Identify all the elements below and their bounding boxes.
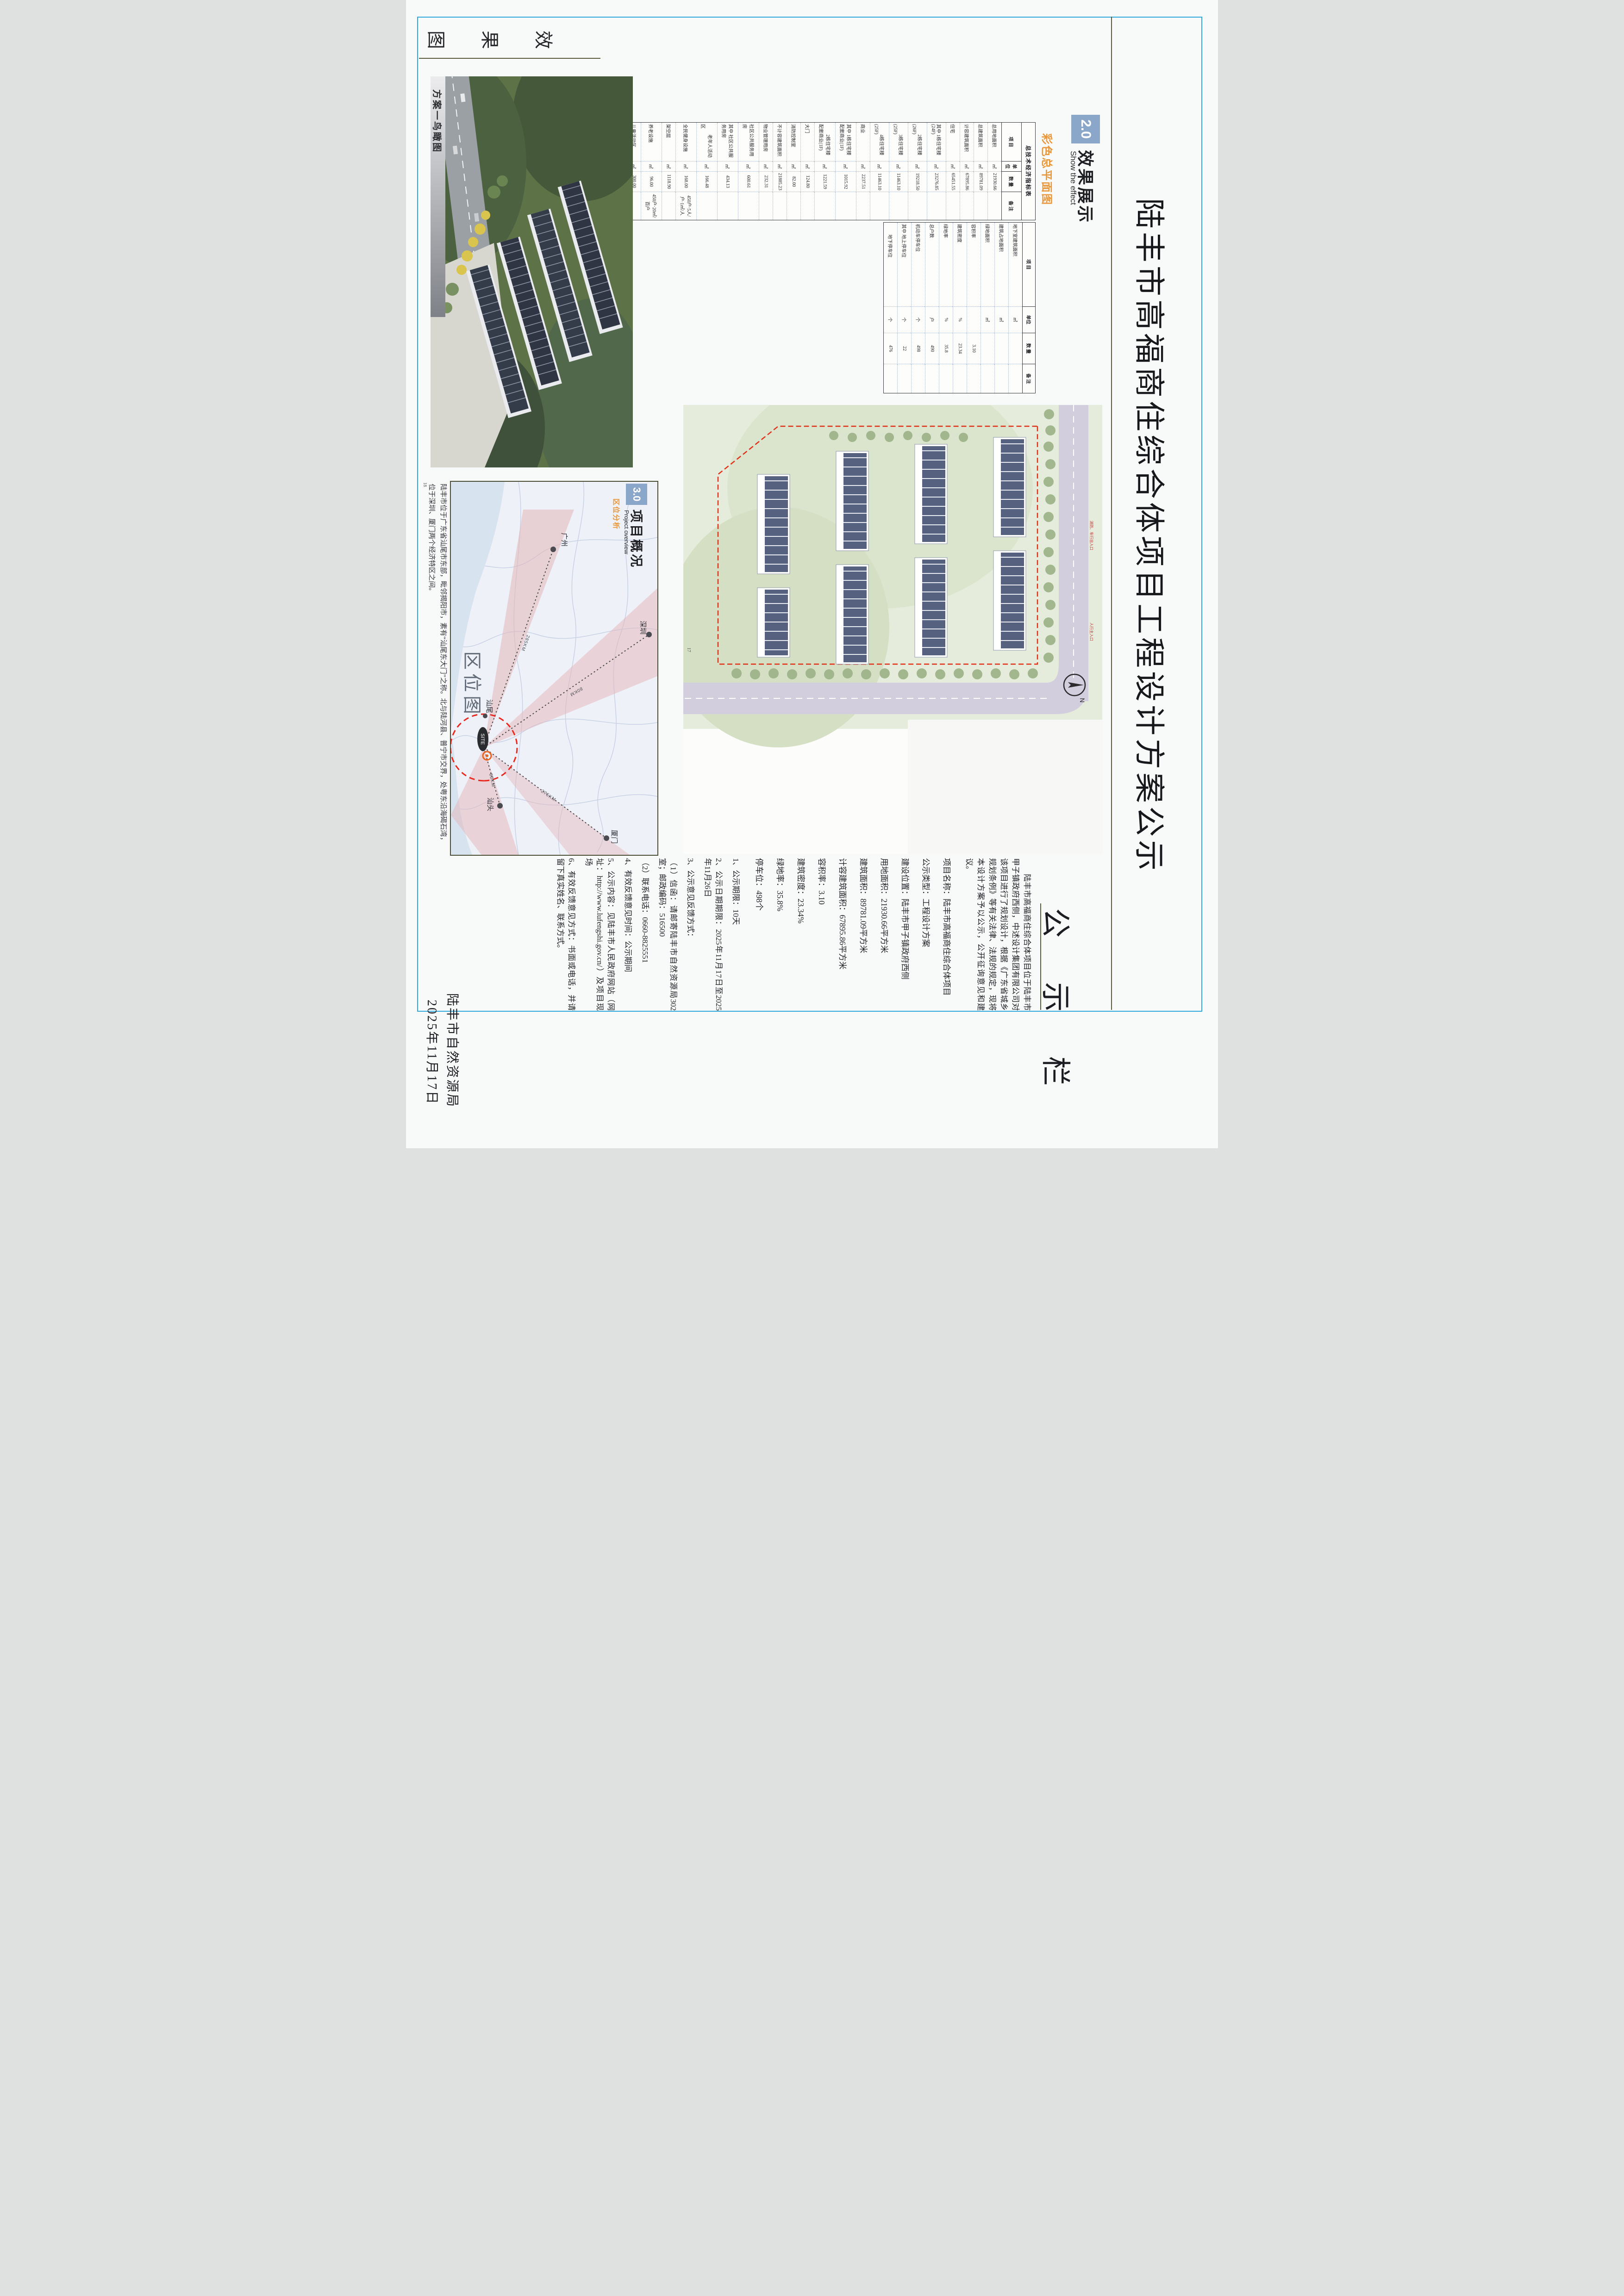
- table-cell-unit: ㎡: [988, 162, 1002, 171]
- table-cell-qty: 21930.66: [988, 171, 1002, 192]
- notice-info-list: 项目名称：陆丰市高福商住综合体项目公示类型：工程设计方案建设位置：陆丰市甲子镇政…: [749, 858, 957, 1011]
- table-row: 地下停车位 个 476: [884, 223, 898, 393]
- site-plan-panel: N 消防、车行出入口 人行主入口 17: [683, 405, 1102, 854]
- table-row: 2栋住宅楼配套商业(1F) ㎡ 1221.59: [815, 123, 836, 220]
- table-cell-qty: 11463.10: [889, 171, 908, 192]
- table-row: 其中 社区公共服务用房 ㎡ 434.13: [718, 123, 738, 220]
- table-row: 总用地面积 ㎡ 21930.66: [988, 123, 1002, 220]
- table-cell-unit: ㎡: [946, 162, 960, 171]
- svg-text:人行主入口: 人行主入口: [1089, 622, 1094, 641]
- table-cell-unit: ㎡: [815, 162, 836, 171]
- table-cell-unit: %: [953, 306, 967, 333]
- table-cell-qty: 19218.50: [908, 171, 927, 192]
- table-b-header: 备 注: [1023, 364, 1036, 393]
- table-cell-item: 总用地面积: [988, 123, 1002, 162]
- table-cell-qty: [981, 333, 995, 364]
- table-row: 计容建筑面积 ㎡ 67895.86: [960, 123, 974, 220]
- table-cell-unit: 个: [884, 306, 898, 333]
- table-cell-note: [995, 364, 1009, 393]
- notice-info-line: 停车位：498个: [749, 858, 769, 1011]
- section3-label: 区位分析: [612, 498, 621, 530]
- section2-number-box: 2.0: [1071, 115, 1100, 143]
- table-cell-unit: ㎡: [960, 162, 974, 171]
- table-cell-note: [974, 192, 988, 220]
- location-map-panel: SITE 广州 深圳 汕尾 汕头 厦门 285KM 80KM 80KM 275K…: [450, 481, 658, 856]
- notice-date: 2025年11月17日: [424, 1000, 442, 1105]
- table-cell-note: [939, 364, 953, 393]
- table-b-header: 单位: [1023, 306, 1036, 333]
- table-row: 全民健身设施 ㎡ 168.00 450户·5人/户·1㎡/人: [676, 123, 697, 220]
- table-cell-unit: ㎡: [974, 162, 988, 171]
- tab-char: 果: [478, 31, 505, 52]
- section3-number-box: 3.0: [626, 484, 647, 505]
- table-cell-item: 养老设施: [641, 123, 662, 162]
- svg-text:消防、车行出入口: 消防、车行出入口: [1089, 521, 1094, 550]
- table-cell-qty: 1015.92: [836, 171, 856, 192]
- map-city-guangzhou: 广州: [560, 533, 569, 547]
- table-a-header: 备 注: [1002, 192, 1022, 220]
- table-cell-qty: 232.31: [759, 171, 773, 192]
- table-cell-note: [889, 192, 908, 220]
- table-cell-note: [912, 364, 925, 393]
- notice-info-line: 建筑密度：23.34%: [790, 858, 811, 1011]
- table-cell-note: [815, 192, 836, 220]
- table-cell-item: 社区公共服务用房: [738, 123, 759, 162]
- table-cell-qty: 35.8: [939, 333, 953, 364]
- table-cell-note: [953, 364, 967, 393]
- tab-char: 效: [531, 31, 558, 52]
- map-description: 陆丰市位于广东省汕尾市东部，毗邻揭阳市，素有“汕尾东大门”之称。北与陆河县、普宁…: [425, 484, 449, 844]
- section3-title: 项目概况: [628, 510, 646, 569]
- table-cell-unit: ㎡: [856, 162, 870, 171]
- left-tab-divider: [419, 58, 600, 59]
- table-row: 2栋住宅楼(26F) ㎡ 19218.50: [908, 123, 927, 220]
- table-cell-unit: ㎡: [927, 162, 946, 171]
- table-row: 建筑密度 % 23.34: [953, 223, 967, 393]
- table-cell-item: 地下停车位: [884, 223, 898, 307]
- table-cell-item: 4栋住宅楼(25F): [870, 123, 889, 162]
- table-row: 社区公共服务用房 ㎡ 600.61: [738, 123, 759, 220]
- page-title: 陆丰市高福商住综合体项目工程设计方案公示: [1130, 198, 1174, 874]
- table-cell-qty: 23.34: [953, 333, 967, 364]
- map-description-line: 位于深圳、厦门两个经济特区之间。: [425, 484, 437, 844]
- table-cell-qty: 1221.59: [815, 171, 836, 192]
- table-row: 总户数 户 490: [925, 223, 939, 393]
- notice-item-line: 5、公示内容：见陆丰市人民政府网站（网址：http://www.lufengsh…: [583, 858, 616, 1011]
- table-cell-item: 其中 地上停车位: [898, 223, 912, 307]
- map-city-shenzhen: 深圳: [638, 621, 648, 635]
- notice-item-line: 6、有效反馈意见方式：书面或电话，并请留下真实姓名、联系方式。: [555, 858, 577, 1011]
- table-cell-note: [801, 192, 815, 220]
- color-siteplan-label: 彩色总平面图: [1040, 133, 1056, 205]
- table-cell-qty: 89781.09: [974, 171, 988, 192]
- table-a-header: 单位: [1002, 162, 1022, 171]
- table-cell-item: 其中 社区公共服务用房: [718, 123, 738, 162]
- board-header-underline: [1040, 903, 1041, 1010]
- table-cell-unit: ㎡: [676, 162, 697, 171]
- notice-info-line: 计容建筑面积：67895.86平方米: [832, 858, 853, 1011]
- notice-board: 陆丰市高福商住综合体项目工程设计方案公示 公 示 栏 陆丰市高福商住综合体项目位…: [406, 0, 1218, 1148]
- table-cell-unit: 个: [912, 306, 925, 333]
- table-cell-note: [960, 192, 974, 220]
- table-cell-qty: 168.00: [676, 171, 697, 192]
- table-cell-item: 其中 1栋住宅楼配套商业(1F): [836, 123, 856, 162]
- table-cell-item: 老年人活动区: [697, 123, 718, 162]
- notice-info-line: 项目名称：陆丰市高福商住综合体项目: [936, 858, 957, 1011]
- table-cell-item: 总户数: [925, 223, 939, 307]
- notice-item-line: （2）联系电话：0660-8825551: [639, 858, 650, 1011]
- signature: 陆丰市自然资源局: [444, 993, 462, 1108]
- section2-subtitle: Show the effect: [1068, 151, 1078, 205]
- table-cell-item: 架空层: [662, 123, 676, 162]
- table-cell-item: 大门: [801, 123, 815, 162]
- table-cell-item: 物业管理用房: [759, 123, 773, 162]
- notice-info-line: 容积率：3.10: [811, 858, 832, 1011]
- notice-item-line: 3、公示意见反馈方式：: [685, 858, 696, 1011]
- notice-item-list: 1、公示期限：10天2、公示日期期限：2025年11月17日至2025年11月2…: [555, 858, 741, 1011]
- table-row: 其中 1栋住宅楼(24F) ㎡ 23276.85: [927, 123, 946, 220]
- table-row: 不计容建筑面积 ㎡ 21885.23: [773, 123, 787, 220]
- table-row: 地下室建筑面积 ㎡: [1009, 223, 1023, 393]
- notice-item-line: 1、公示期限：10天: [730, 858, 741, 1011]
- table-cell-note: [836, 192, 856, 220]
- table-cell-unit: ㎡: [995, 306, 1009, 333]
- notice-info-line: 建设位置：陆丰市甲子镇政府西侧: [894, 858, 915, 1011]
- table-cell-note: 450户·20㎡/百户: [641, 192, 662, 220]
- table-b-header: 数 量: [1023, 333, 1036, 364]
- table-cell-note: [925, 364, 939, 393]
- table-cell-unit: ㎡: [759, 162, 773, 171]
- table-cell-qty: 166.48: [697, 171, 718, 192]
- table-cell-unit: ㎡: [1009, 306, 1023, 333]
- table-cell-unit: ㎡: [641, 162, 662, 171]
- title-divider: [1111, 17, 1112, 1010]
- table-cell-item: 商业: [856, 123, 870, 162]
- site-plan-drawing: N 消防、车行出入口 人行主入口: [683, 405, 1102, 854]
- table-a-header: 数 量: [1002, 171, 1022, 192]
- table-cell-item: 机动车停车位: [912, 223, 925, 307]
- table-cell-qty: 21885.23: [773, 171, 787, 192]
- notice-item-line: 2、公示日期期限：2025年11月17日至2025年11月26日: [702, 858, 724, 1011]
- table-row: 建筑占地面积 ㎡: [995, 223, 1009, 393]
- table-row: 大门 ㎡ 124.80: [801, 123, 815, 220]
- map-description-line: 陆丰市位于广东省汕尾市东部，毗邻揭阳市，素有“汕尾东大门”之称。北与陆河县、普宁…: [437, 484, 449, 844]
- table-cell-unit: ㎡: [697, 162, 718, 171]
- table-cell-qty: 11463.10: [870, 171, 889, 192]
- table-cell-item: 其中 1栋住宅楼(24F): [927, 123, 946, 162]
- table-cell-qty: 124.80: [801, 171, 815, 192]
- table-cell-unit: ㎡: [787, 162, 801, 171]
- section2-title: 效果展示: [1074, 150, 1099, 224]
- notice-intro: 陆丰市高福商住综合体项目位于陆丰市甲子镇政府西侧，中述设计集团有限公司对该项目进…: [963, 858, 1033, 1011]
- table-row: 物业管理用房 ㎡ 232.31: [759, 123, 773, 220]
- table-cell-item: 地下室建筑面积: [1009, 223, 1023, 307]
- notice-item-line: （1）信函：请邮寄陆丰市自然资源局302室；邮政编码：516500: [656, 858, 679, 1011]
- tab-char: 图: [424, 31, 451, 52]
- table-cell-unit: ㎡: [870, 162, 889, 171]
- table-row: 其中 地上停车位 个 22: [898, 223, 912, 393]
- table-cell-qty: 65451.55: [946, 171, 960, 192]
- notice-item-line: 4、有效反馈意见时间：公示期间: [622, 858, 633, 1011]
- scanned-page: 陆丰市高福商住综合体项目工程设计方案公示 公 示 栏 陆丰市高福商住综合体项目位…: [406, 0, 1218, 1148]
- table-cell-qty: 3.10: [967, 333, 981, 364]
- table-cell-qty: 96.00: [641, 171, 662, 192]
- table-a-header: 项 目: [1002, 123, 1022, 162]
- table-cell-item: 总建筑面积: [974, 123, 988, 162]
- table-cell-note: [870, 192, 889, 220]
- table-row: 总建筑面积 ㎡ 89781.09: [974, 123, 988, 220]
- table-cell-qty: 82.00: [787, 171, 801, 192]
- table-cell-qty: 476: [884, 333, 898, 364]
- table-cell-note: [787, 192, 801, 220]
- left-tab-effect-drawing: 效 果 图: [424, 31, 558, 52]
- table-cell-unit: ㎡: [662, 162, 676, 171]
- section2-number: 2.0: [1078, 119, 1093, 139]
- table-cell-note: [908, 192, 927, 220]
- render-caption: 方案一鸟瞰图: [431, 76, 445, 153]
- table-cell-note: [856, 192, 870, 220]
- table-cell-note: [884, 364, 898, 393]
- table-cell-qty: 498: [912, 333, 925, 364]
- table-cell-note: [662, 192, 676, 220]
- table-row: 绿地面积 ㎡: [981, 223, 995, 393]
- table-cell-note: [738, 192, 759, 220]
- table-row: 老年人活动区 ㎡ 166.48: [697, 123, 718, 220]
- site-plan-page-number: 17: [686, 647, 691, 652]
- table-cell-unit: ㎡: [908, 162, 927, 171]
- table-cell-note: [898, 364, 912, 393]
- notice-text-panel: 陆丰市高福商住综合体项目位于陆丰市甲子镇政府西侧，中述设计集团有限公司对该项目进…: [549, 858, 1033, 1011]
- map-city-shantou: 汕头: [486, 797, 495, 811]
- table-row: 养老设施 ㎡ 96.00 450户·20㎡/百户: [641, 123, 662, 220]
- notice-info-line: 公示类型：工程设计方案: [915, 858, 936, 1011]
- table-cell-item: 全民健身设施: [676, 123, 697, 162]
- table-cell-item: 消防控制室: [787, 123, 801, 162]
- table-row: 绿地率 % 35.8: [939, 223, 953, 393]
- svg-text:SITE: SITE: [480, 734, 485, 745]
- table-cell-item: 不计容建筑面积: [773, 123, 787, 162]
- table-cell-qty: 490: [925, 333, 939, 364]
- table-row: 商业 ㎡ 2237.51: [856, 123, 870, 220]
- table-cell-unit: [967, 306, 981, 333]
- table-a-title: 总技术经济指标表: [1022, 122, 1036, 220]
- section3-number: 3.0: [631, 487, 643, 502]
- table-cell-note: [927, 192, 946, 220]
- indicator-table-b: 项 目 单位 数 量 备 注 地下室建筑面积 ㎡ 建筑: [883, 222, 1036, 393]
- map-city-xiamen: 厦门: [610, 830, 619, 844]
- table-cell-item: 2栋住宅楼配套商业(1F): [815, 123, 836, 162]
- table-cell-note: [988, 192, 1002, 220]
- table-cell-unit: ㎡: [773, 162, 787, 171]
- table-cell-qty: [1009, 333, 1023, 364]
- table-cell-note: [718, 192, 738, 220]
- render-image: [431, 76, 633, 467]
- notice-info-line: 建筑面积：89781.09平方米: [853, 858, 874, 1011]
- table-cell-qty: 23276.85: [927, 171, 946, 192]
- table-row: 4栋住宅楼(25F) ㎡ 11463.10: [870, 123, 889, 220]
- indicator-table-a: 总技术经济指标表 项 目 单位 数 量 备 注 总用地面积 ㎡ 21930.66: [627, 122, 1036, 220]
- table-cell-note: [697, 192, 718, 220]
- table-row: 其中 1栋住宅楼配套商业(1F) ㎡ 1015.92: [836, 123, 856, 220]
- board-header-label: 公 示 栏: [1037, 908, 1079, 1104]
- table-cell-item: 住宅: [946, 123, 960, 162]
- notice-info-line: 用地面积：21930.66平方米: [874, 858, 894, 1011]
- table-b-header: 项 目: [1023, 223, 1036, 307]
- table-row: 机动车停车位 个 498: [912, 223, 925, 393]
- table-cell-note: [946, 192, 960, 220]
- table-cell-unit: %: [939, 306, 953, 333]
- table-cell-qty: 600.61: [738, 171, 759, 192]
- table-cell-unit: ㎡: [836, 162, 856, 171]
- table-cell-item: 建筑占地面积: [995, 223, 1009, 307]
- svg-text:N: N: [1079, 698, 1086, 703]
- table-cell-qty: 67895.86: [960, 171, 974, 192]
- table-cell-note: [759, 192, 773, 220]
- table-row: 容积率 3.10: [967, 223, 981, 393]
- table-row: 消防控制室 ㎡ 82.00: [787, 123, 801, 220]
- table-cell-note: [967, 364, 981, 393]
- table-cell-qty: 434.13: [718, 171, 738, 192]
- table-cell-item: 3栋住宅楼(25F): [889, 123, 908, 162]
- table-row: 3栋住宅楼(25F) ㎡ 11463.10: [889, 123, 908, 220]
- table-cell-unit: ㎡: [889, 162, 908, 171]
- render-caption-strip: 方案一鸟瞰图: [431, 76, 445, 317]
- section3-subtitle: Project overview: [623, 510, 630, 554]
- table-cell-item: 计容建筑面积: [960, 123, 974, 162]
- table-cell-note: [981, 364, 995, 393]
- table-cell-unit: 个: [898, 306, 912, 333]
- table-cell-qty: 2237.51: [856, 171, 870, 192]
- notice-info-line: 绿地率：35.8%: [769, 858, 790, 1011]
- table-row: 住宅 ㎡ 65451.55: [946, 123, 960, 220]
- table-cell-qty: 22: [898, 333, 912, 364]
- table-cell-item: 绿地面积: [981, 223, 995, 307]
- table-cell-unit: ㎡: [738, 162, 759, 171]
- table-cell-item: 2栋住宅楼(26F): [908, 123, 927, 162]
- table-cell-unit: ㎡: [718, 162, 738, 171]
- table-cell-qty: [995, 333, 1009, 364]
- table-cell-note: [773, 192, 787, 220]
- table-cell-item: 建筑密度: [953, 223, 967, 307]
- table-cell-unit: 户: [925, 306, 939, 333]
- table-cell-note: [1009, 364, 1023, 393]
- table-cell-unit: ㎡: [981, 306, 995, 333]
- render-panel: 方案一鸟瞰图: [431, 76, 633, 467]
- table-cell-qty: 1118.90: [662, 171, 676, 192]
- map-caption: 区位图: [460, 651, 487, 718]
- table-cell-item: 容积率: [967, 223, 981, 307]
- table-cell-unit: ㎡: [801, 162, 815, 171]
- table-row: 架空层 ㎡ 1118.90: [662, 123, 676, 220]
- table-cell-item: 绿地率: [939, 223, 953, 307]
- table-cell-note: 450户·5人/户·1㎡/人: [676, 192, 697, 220]
